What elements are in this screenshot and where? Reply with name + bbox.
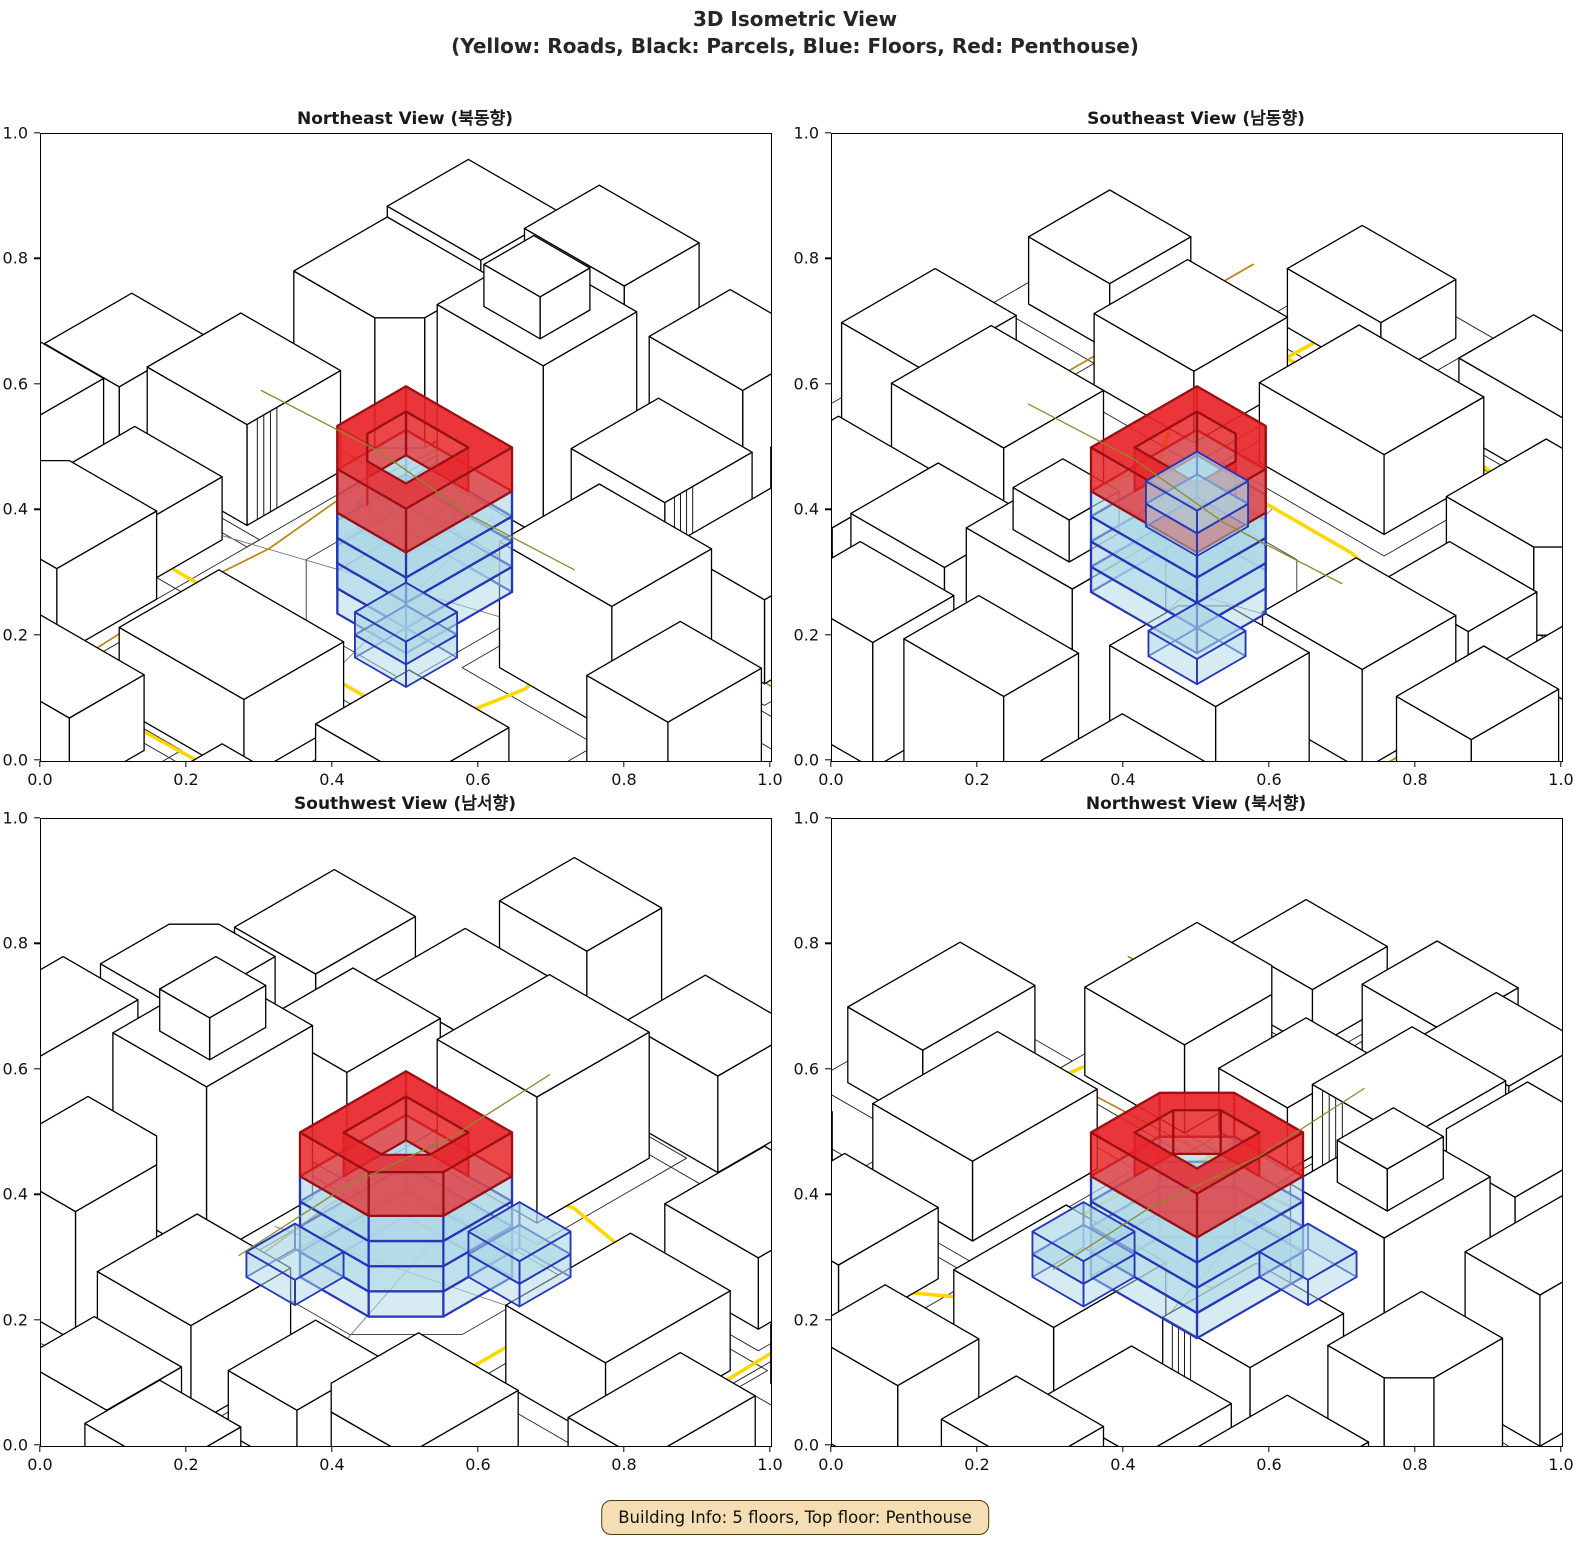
x-tick-mark: [477, 1446, 478, 1452]
y-axis-northwest: 0.00.20.40.60.81.0: [771, 818, 831, 1445]
y-tick-label: 0.6: [794, 1059, 819, 1078]
x-tick-mark: [769, 761, 770, 767]
x-axis-southeast: 0.00.20.40.60.81.0: [831, 761, 1561, 795]
x-tick-label: 1.0: [1548, 1455, 1573, 1474]
y-tick-mark: [825, 1319, 831, 1320]
y-tick-mark: [825, 383, 831, 384]
y-tick-mark: [34, 1193, 40, 1194]
x-tick-mark: [39, 1446, 40, 1452]
y-tick-label: 0.8: [3, 934, 28, 953]
figure: 3D Isometric View (Yellow: Roads, Black:…: [0, 0, 1590, 1560]
y-tick-mark: [825, 1193, 831, 1194]
isometric-canvas-northwest: [832, 819, 1562, 1446]
x-tick-label: 0.8: [1402, 1455, 1427, 1474]
plot-area-southwest: [40, 818, 772, 1447]
x-tick-mark: [1122, 761, 1123, 767]
x-tick-label: 0.6: [1256, 1455, 1281, 1474]
x-tick-mark: [623, 1446, 624, 1452]
y-tick-mark: [34, 943, 40, 944]
x-tick-label: 0.4: [1110, 770, 1135, 789]
x-tick-label: 0.6: [465, 770, 490, 789]
y-tick-label: 0.2: [794, 625, 819, 644]
y-tick-mark: [34, 1319, 40, 1320]
y-tick-mark: [825, 817, 831, 818]
y-axis-southeast: 0.00.20.40.60.81.0: [771, 133, 831, 760]
figure-title-line1: 3D Isometric View: [0, 6, 1590, 33]
x-tick-mark: [623, 761, 624, 767]
y-tick-mark: [825, 759, 831, 760]
y-tick-label: 0.4: [794, 500, 819, 519]
x-tick-mark: [1122, 1446, 1123, 1452]
x-tick-label: 0.2: [964, 1455, 989, 1474]
x-tick-label: 0.4: [319, 1455, 344, 1474]
x-tick-label: 1.0: [1548, 770, 1573, 789]
y-tick-mark: [34, 508, 40, 509]
isometric-canvas-southeast: [832, 134, 1562, 761]
x-tick-mark: [1560, 1446, 1561, 1452]
x-tick-mark: [976, 761, 977, 767]
x-axis-southwest: 0.00.20.40.60.81.0: [40, 1446, 770, 1480]
y-tick-label: 0.4: [3, 1185, 28, 1204]
x-tick-mark: [477, 761, 478, 767]
x-tick-label: 0.8: [611, 1455, 636, 1474]
y-tick-label: 0.4: [794, 1185, 819, 1204]
y-tick-mark: [825, 508, 831, 509]
y-tick-label: 0.2: [794, 1310, 819, 1329]
x-axis-northwest: 0.00.20.40.60.81.0: [831, 1446, 1561, 1480]
y-tick-label: 0.8: [3, 249, 28, 268]
y-tick-label: 0.6: [3, 1059, 28, 1078]
y-tick-mark: [825, 943, 831, 944]
x-tick-label: 0.2: [173, 770, 198, 789]
x-tick-label: 0.2: [964, 770, 989, 789]
y-tick-label: 0.8: [794, 934, 819, 953]
x-tick-mark: [331, 1446, 332, 1452]
x-tick-mark: [976, 1446, 977, 1452]
x-tick-mark: [39, 761, 40, 767]
y-tick-mark: [34, 1068, 40, 1069]
y-tick-mark: [825, 258, 831, 259]
y-tick-mark: [34, 383, 40, 384]
building-info-badge: Building Info: 5 floors, Top floor: Pent…: [601, 1500, 989, 1535]
plot-title-northeast: Northeast View (북동향): [40, 104, 770, 129]
x-tick-mark: [830, 1446, 831, 1452]
y-tick-mark: [34, 1444, 40, 1445]
x-tick-label: 0.0: [27, 1455, 52, 1474]
y-tick-mark: [34, 634, 40, 635]
y-tick-label: 0.0: [3, 1436, 28, 1455]
isometric-canvas-northeast: [41, 134, 771, 761]
x-tick-mark: [1268, 1446, 1269, 1452]
x-tick-mark: [1268, 761, 1269, 767]
y-tick-label: 1.0: [3, 809, 28, 828]
x-tick-label: 0.0: [818, 1455, 843, 1474]
x-tick-label: 1.0: [757, 770, 782, 789]
y-tick-label: 0.8: [794, 249, 819, 268]
x-tick-label: 0.4: [1110, 1455, 1135, 1474]
y-axis-southwest: 0.00.20.40.60.81.0: [0, 818, 40, 1445]
x-tick-label: 0.0: [818, 770, 843, 789]
y-tick-mark: [825, 634, 831, 635]
figure-title-line2: (Yellow: Roads, Black: Parcels, Blue: Fl…: [0, 33, 1590, 60]
plot-area-northeast: [40, 133, 772, 762]
x-tick-mark: [185, 761, 186, 767]
y-tick-mark: [34, 258, 40, 259]
y-axis-northeast: 0.00.20.40.60.81.0: [0, 133, 40, 760]
x-tick-mark: [1414, 1446, 1415, 1452]
plot-area-northwest: [831, 818, 1563, 1447]
y-tick-mark: [34, 817, 40, 818]
x-tick-mark: [185, 1446, 186, 1452]
y-tick-label: 0.6: [794, 374, 819, 393]
y-tick-label: 0.0: [794, 751, 819, 770]
x-tick-label: 0.0: [27, 770, 52, 789]
x-tick-mark: [769, 1446, 770, 1452]
y-tick-label: 0.2: [3, 625, 28, 644]
plot-title-southeast: Southeast View (남동향): [831, 104, 1561, 129]
isometric-canvas-southwest: [41, 819, 771, 1446]
y-tick-mark: [825, 1444, 831, 1445]
y-tick-label: 0.0: [3, 751, 28, 770]
x-axis-northeast: 0.00.20.40.60.81.0: [40, 761, 770, 795]
plot-area-southeast: [831, 133, 1563, 762]
y-tick-label: 1.0: [794, 124, 819, 143]
y-tick-label: 0.4: [3, 500, 28, 519]
x-tick-mark: [1560, 761, 1561, 767]
y-tick-label: 1.0: [3, 124, 28, 143]
y-tick-mark: [825, 132, 831, 133]
x-tick-label: 0.8: [611, 770, 636, 789]
figure-title: 3D Isometric View (Yellow: Roads, Black:…: [0, 6, 1590, 60]
x-tick-mark: [1414, 761, 1415, 767]
y-tick-label: 0.2: [3, 1310, 28, 1329]
y-tick-label: 0.0: [794, 1436, 819, 1455]
y-tick-mark: [825, 1068, 831, 1069]
y-tick-mark: [34, 132, 40, 133]
x-tick-label: 0.4: [319, 770, 344, 789]
y-tick-mark: [34, 759, 40, 760]
x-tick-label: 0.2: [173, 1455, 198, 1474]
x-tick-label: 0.6: [465, 1455, 490, 1474]
x-tick-label: 1.0: [757, 1455, 782, 1474]
x-tick-label: 0.8: [1402, 770, 1427, 789]
x-tick-label: 0.6: [1256, 770, 1281, 789]
y-tick-label: 1.0: [794, 809, 819, 828]
y-tick-label: 0.6: [3, 374, 28, 393]
x-tick-mark: [830, 761, 831, 767]
x-tick-mark: [331, 761, 332, 767]
